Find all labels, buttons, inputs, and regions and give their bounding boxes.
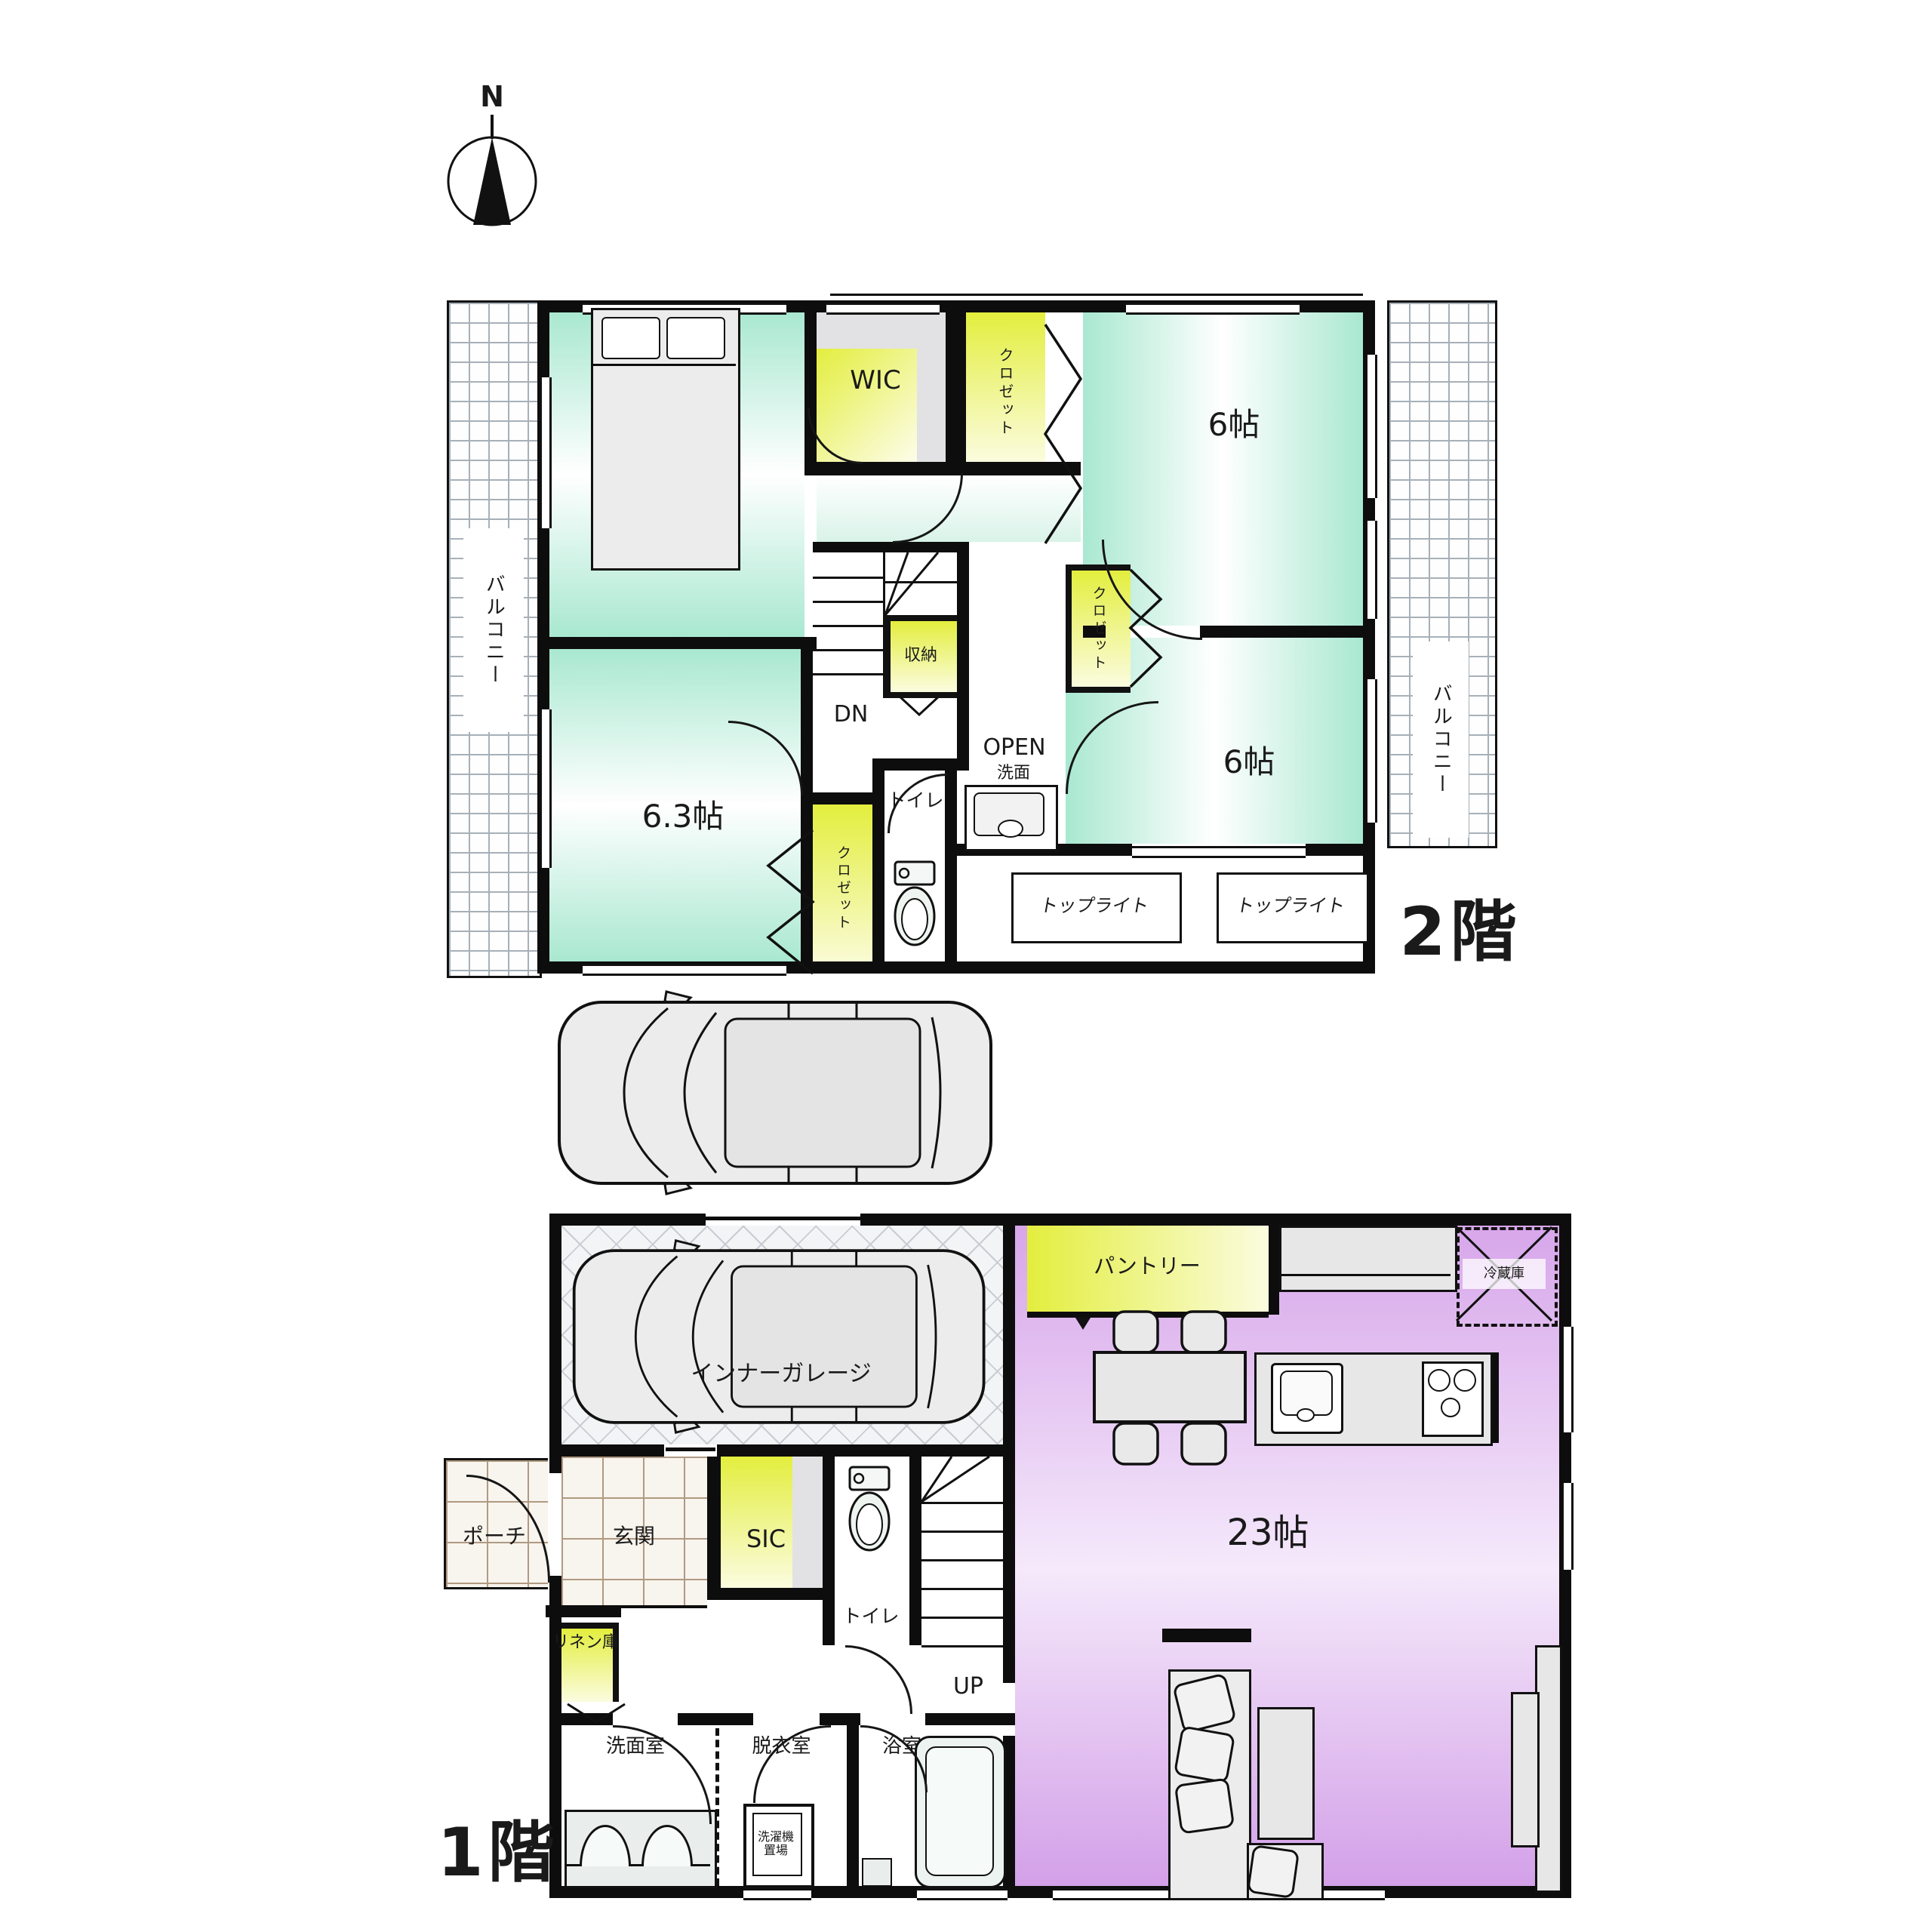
wall [957,542,969,771]
door-arc [845,1645,912,1714]
stairs-1f [921,1617,1003,1619]
bathtub-inner [925,1746,994,1876]
compass-north-label: N [472,80,512,115]
washbasin-drain [998,820,1023,838]
stove-burner [1454,1369,1476,1392]
wall [872,758,884,974]
wall [549,1444,664,1457]
wall [820,1713,860,1725]
toilet-1f-icon [845,1464,894,1555]
window [917,1888,1008,1900]
wall [537,637,817,649]
bedroom4-size-label: 6.3帖 [626,798,740,835]
car-icon [555,990,1000,1195]
sink-drain [1297,1408,1315,1422]
window [1126,303,1300,315]
washbasin-2f-label: 洗面 [981,764,1046,783]
wall [860,1214,1015,1226]
wall [549,1214,706,1226]
door-arc [888,774,947,833]
wall [707,1588,835,1600]
garage-shutter-line [706,1217,860,1220]
wall [813,542,957,552]
wall [925,1713,1015,1725]
wall [1015,1214,1571,1226]
bifold-door-icon [768,830,813,974]
stairs-fan-1f [921,1457,1003,1503]
dining-set [1085,1306,1259,1484]
wall [1269,1226,1279,1315]
wall [1200,626,1375,638]
balcony-left-label: バルコニー [463,528,524,732]
stairs-1f [921,1588,1003,1590]
window [1365,679,1377,823]
wic-shelf-top [817,312,958,349]
stairs-1f [921,1531,1003,1533]
door-line [666,1447,715,1451]
pantry-label: パントリー [1057,1251,1238,1281]
ldk-size-label: 23帖 [1200,1512,1336,1553]
open-label: OPEN [972,734,1057,761]
bed-pillow [601,317,660,359]
storage-door-icon [898,695,940,718]
wall [946,300,966,475]
wall [707,1457,721,1600]
stairs-dn-label: DN [815,699,887,729]
stairs-2f [813,625,883,627]
stairs-1f [921,1559,1003,1561]
washer-label: 洗濯機置場 [754,1819,798,1869]
wall [872,758,957,771]
eave-line [830,294,1363,296]
window [540,709,552,868]
door-arc [613,1725,712,1824]
window [583,964,786,976]
sofa-cushion [1174,1725,1235,1784]
bath-counter [862,1858,892,1887]
bedroom2-size-label: 6帖 [1174,406,1294,444]
window [540,377,552,528]
toilet-2f-icon [891,859,939,949]
stairs-up-label: UP [934,1672,1002,1700]
cupboard-line [1281,1274,1451,1276]
wall [813,792,872,804]
stairs-1f [921,1645,1003,1647]
wall [678,1713,753,1725]
entrance-label: 玄関 [592,1523,675,1550]
window [743,1888,811,1900]
wall [909,1457,921,1645]
skylight-label: トップライト [1214,891,1367,921]
compass-icon [432,115,552,240]
bed-line [591,364,736,366]
bedroom3-size-label: 6帖 [1189,743,1309,781]
wall [717,1444,1015,1457]
stairs-2f [813,601,883,603]
window [1561,1483,1574,1570]
sic-room [721,1457,792,1588]
balcony-right-label: バルコニー [1413,641,1469,838]
tv-board-inner [1511,1692,1540,1847]
bed-pillow [666,317,725,359]
window [1365,355,1377,498]
closet-top-label: クロゼット [975,332,1035,453]
wall [546,1605,621,1617]
wall [804,300,817,475]
toilet-1f-label: トイレ [833,1604,909,1629]
stairs-fan-2f [885,552,957,617]
wall [847,1725,859,1886]
linen-label: リネン庫 [537,1632,634,1654]
floorplan-page: N バルコニー バルコニー [0,0,1932,1932]
stairs-2f [813,673,883,675]
bifold-door-icon [1045,325,1081,543]
window [1561,1327,1574,1432]
linen-door-icon [568,1704,625,1724]
stove-burner [1428,1369,1451,1392]
car-in-garage-icon [570,1238,992,1435]
tv-bar [1162,1629,1251,1642]
sofa-cushion [1247,1844,1300,1899]
window [1365,521,1377,619]
sic-shelf [792,1457,823,1588]
storage-label: 収納 [891,643,951,669]
fridge-label: 冷蔵庫 [1463,1259,1546,1289]
floor2-title: 2階 [1389,891,1532,974]
garage-label: インナーガレージ [657,1357,906,1390]
sic-label: SIC [721,1524,811,1555]
coffee-table [1257,1707,1315,1840]
kitchen-cupboard [1279,1226,1457,1292]
window [1132,846,1306,858]
stairs-2f [813,577,883,579]
wall [1306,844,1375,856]
wall [549,1214,561,1473]
stairs-2f [813,649,883,651]
sofa-cushion [1174,1777,1235,1834]
window [826,303,940,315]
step-line [621,1605,707,1608]
skylight-label: トップライト [1012,891,1176,921]
stove-burner [1441,1398,1460,1417]
closet-6-3-label: クロゼット [815,823,870,955]
wic-label: WIC [830,366,921,396]
floor1-title: 1階 [423,1811,574,1894]
